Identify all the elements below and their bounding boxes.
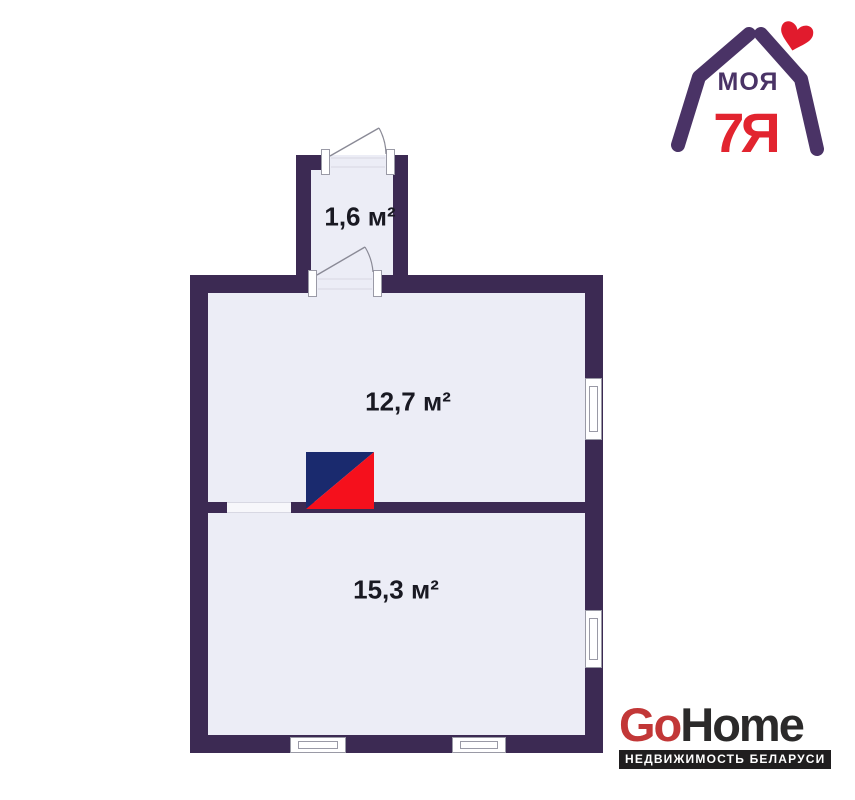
room-area-label-vestibule: 1,6 м²	[324, 202, 395, 233]
gohome-tagline-bar: НЕДВИЖИМОСТЬ БЕЛАРУСИ	[619, 750, 831, 769]
door-jamb	[373, 270, 382, 297]
window-frame	[589, 618, 598, 660]
window-right-upper	[585, 378, 602, 440]
door-jamb	[321, 149, 330, 175]
door-arc-icon	[379, 128, 386, 154]
window-right-lower	[585, 610, 602, 668]
door-leaf-icon	[330, 128, 379, 156]
window-frame	[298, 741, 338, 749]
door-opening-exterior	[330, 155, 386, 170]
window-frame	[460, 741, 498, 749]
door-jamb	[386, 149, 395, 175]
moya7ya-logo: МОЯ 7Я	[650, 12, 855, 182]
stove-icon	[306, 452, 374, 509]
moya-text: МОЯ	[718, 68, 779, 96]
gohome-go-text: Go	[619, 698, 680, 751]
door-jamb	[308, 270, 317, 297]
window-bottom-right	[452, 737, 506, 753]
door-opening-vestibule	[317, 275, 373, 293]
window-bottom-left	[290, 737, 346, 753]
main-floor	[208, 293, 585, 735]
window-frame	[589, 386, 598, 432]
gohome-logo: GoHome НЕДВИЖИМОСТЬ БЕЛАРУСИ	[619, 700, 829, 769]
7ya-text: 7Я	[713, 101, 777, 164]
gohome-home-text: Home	[680, 698, 803, 751]
room-area-label-lower: 15,3 м²	[353, 575, 439, 606]
internal-wall-opening	[227, 502, 291, 513]
room-area-label-upper: 12,7 м²	[365, 387, 451, 418]
gohome-wordmark: GoHome	[619, 700, 829, 749]
